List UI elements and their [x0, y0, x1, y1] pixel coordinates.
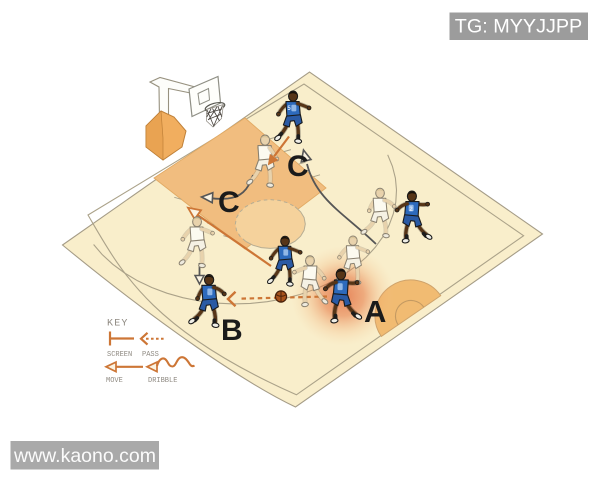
svg-text:B: B: [221, 314, 243, 347]
svg-text:www.kaono.com: www.kaono.com: [13, 445, 156, 467]
svg-text:TG: MYYJJPP: TG: MYYJJPP: [455, 16, 583, 38]
svg-text:KEY: KEY: [107, 319, 129, 330]
svg-text:A: A: [364, 294, 386, 329]
svg-text:MOVE: MOVE: [106, 377, 123, 385]
svg-text:PASS: PASS: [142, 351, 159, 359]
svg-text:SCREEN: SCREEN: [107, 351, 132, 359]
svg-text:DRIBBLE: DRIBBLE: [148, 377, 177, 385]
svg-text:C: C: [287, 150, 309, 183]
svg-text:C: C: [218, 186, 240, 219]
